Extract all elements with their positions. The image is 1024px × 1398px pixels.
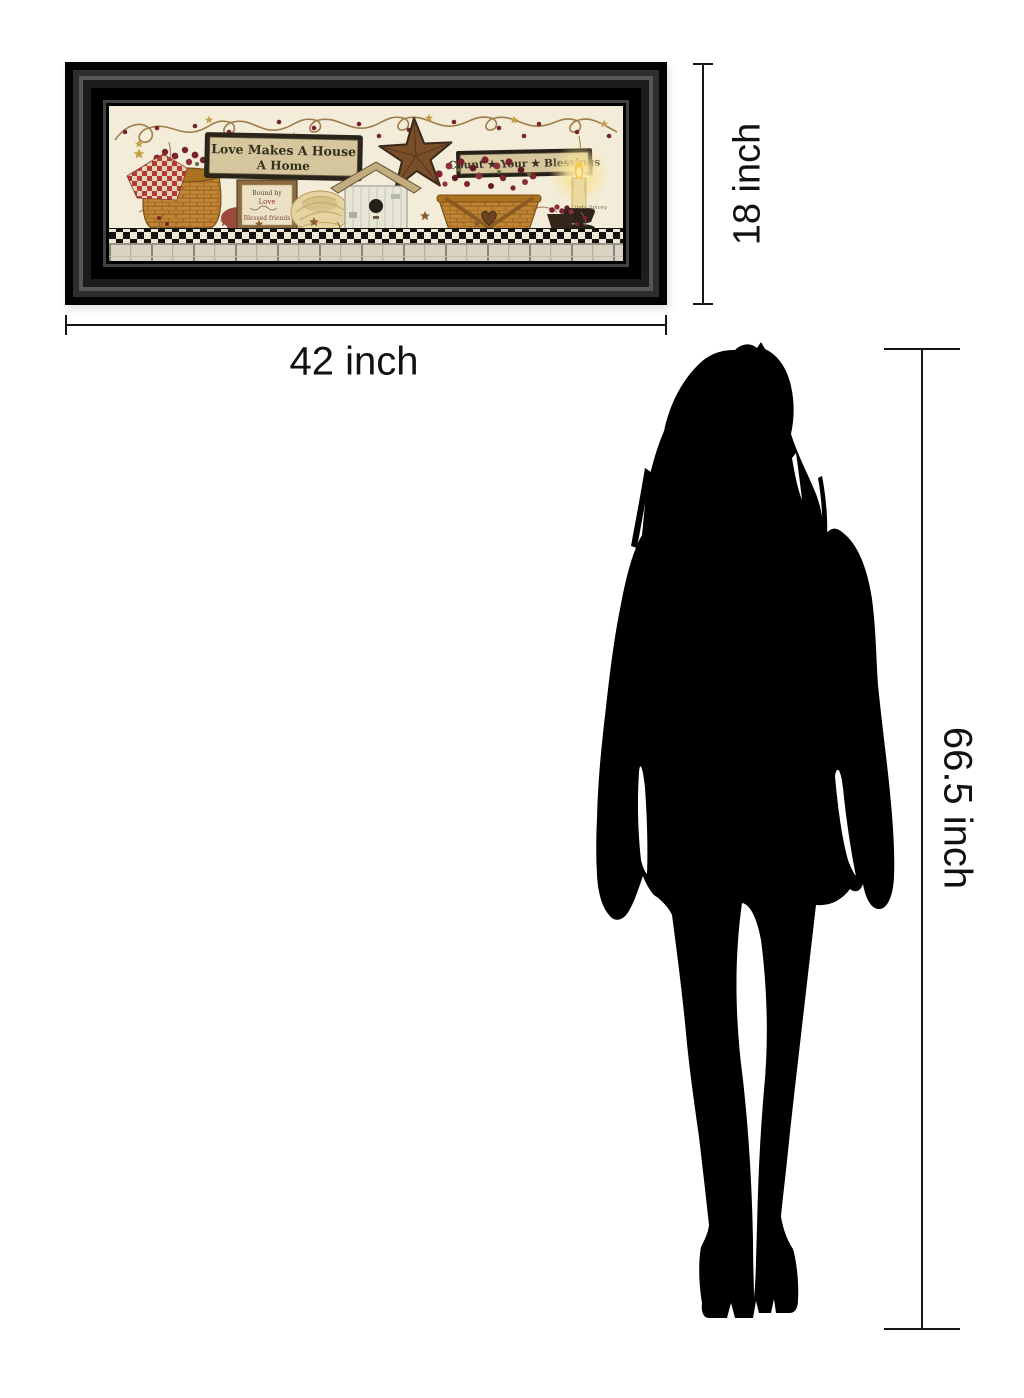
artist-signature: Linda Spivey (570, 205, 608, 211)
main-sign-line1: Love Makes A House (211, 141, 356, 159)
main-sign: Love Makes A House A Home (204, 132, 363, 181)
silhouette-body (596, 342, 894, 1318)
wood-plank-shelf (109, 243, 623, 261)
small-framed-sign: Bound by Love Blessed friends (237, 180, 297, 230)
artwork-canvas: Love Makes A House A Home Bound by Love … (109, 106, 623, 261)
small-sign-line2: Love (259, 198, 276, 206)
nest (291, 191, 349, 233)
figure-height-dimension-label: 66.5 inch (935, 727, 980, 889)
product-dimension-diagram: Love Makes A House A Home Bound by Love … (0, 0, 1024, 1398)
checkerboard-shelf (109, 228, 623, 243)
frame-height-dimension-label: 18 inch (727, 123, 770, 246)
small-sign-line1: Bound by (252, 190, 282, 197)
figure-height-dimension-line (921, 348, 923, 1330)
frame-width-dimension-label: 42 inch (290, 340, 419, 385)
small-sign-line3: Blessed friends (244, 215, 291, 222)
frame-width-dimension-line (65, 324, 667, 326)
woman-silhouette (585, 340, 905, 1332)
frame-height-dimension-line (702, 63, 704, 305)
framed-artwork: Love Makes A House A Home Bound by Love … (65, 62, 667, 305)
main-sign-line2: A Home (256, 158, 311, 173)
